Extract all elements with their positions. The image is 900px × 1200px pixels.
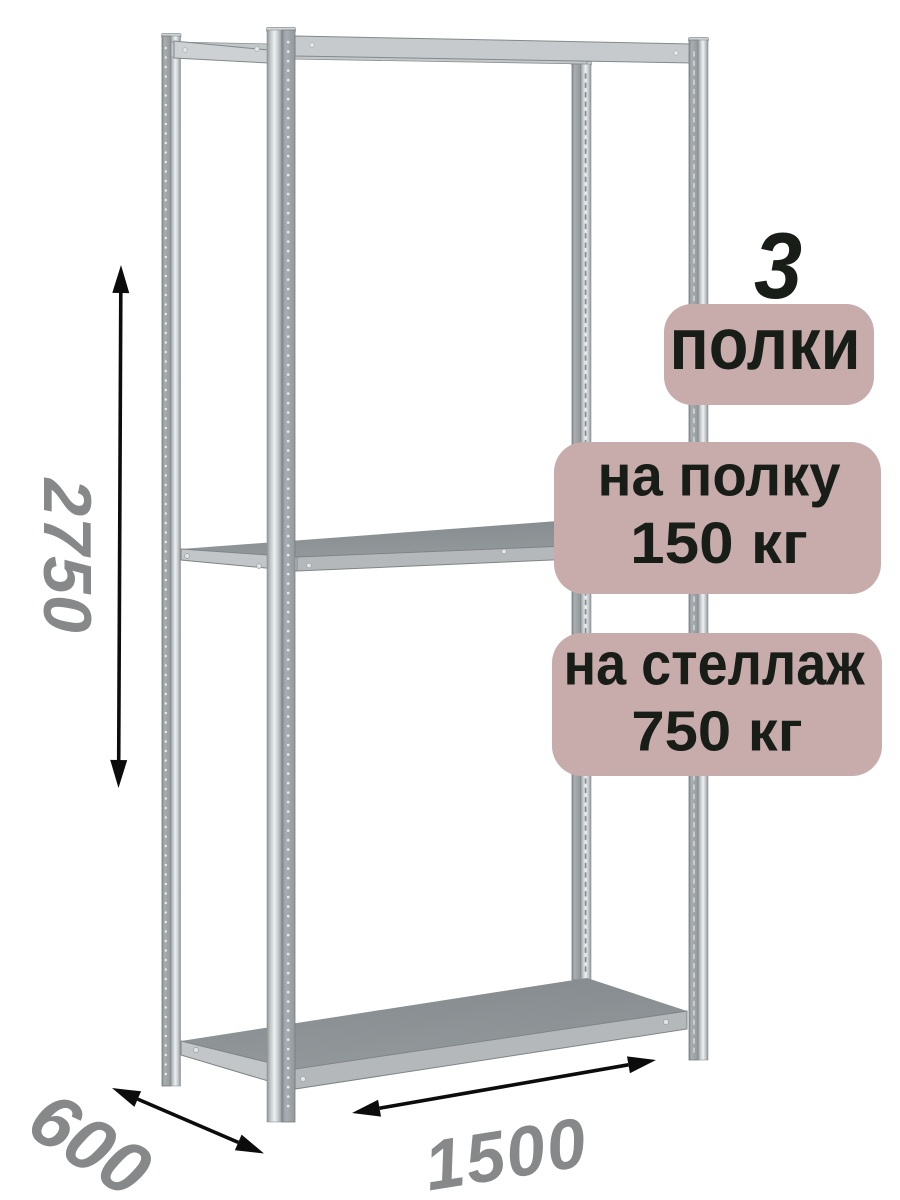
svg-text:2750: 2750	[29, 476, 105, 633]
svg-text:полки: полки	[669, 302, 860, 384]
svg-text:150 кг: 150 кг	[630, 511, 808, 576]
svg-text:750 кг: 750 кг	[631, 700, 802, 763]
svg-text:на стеллаж: на стеллаж	[563, 631, 865, 698]
svg-text:на полку: на полку	[598, 444, 841, 509]
